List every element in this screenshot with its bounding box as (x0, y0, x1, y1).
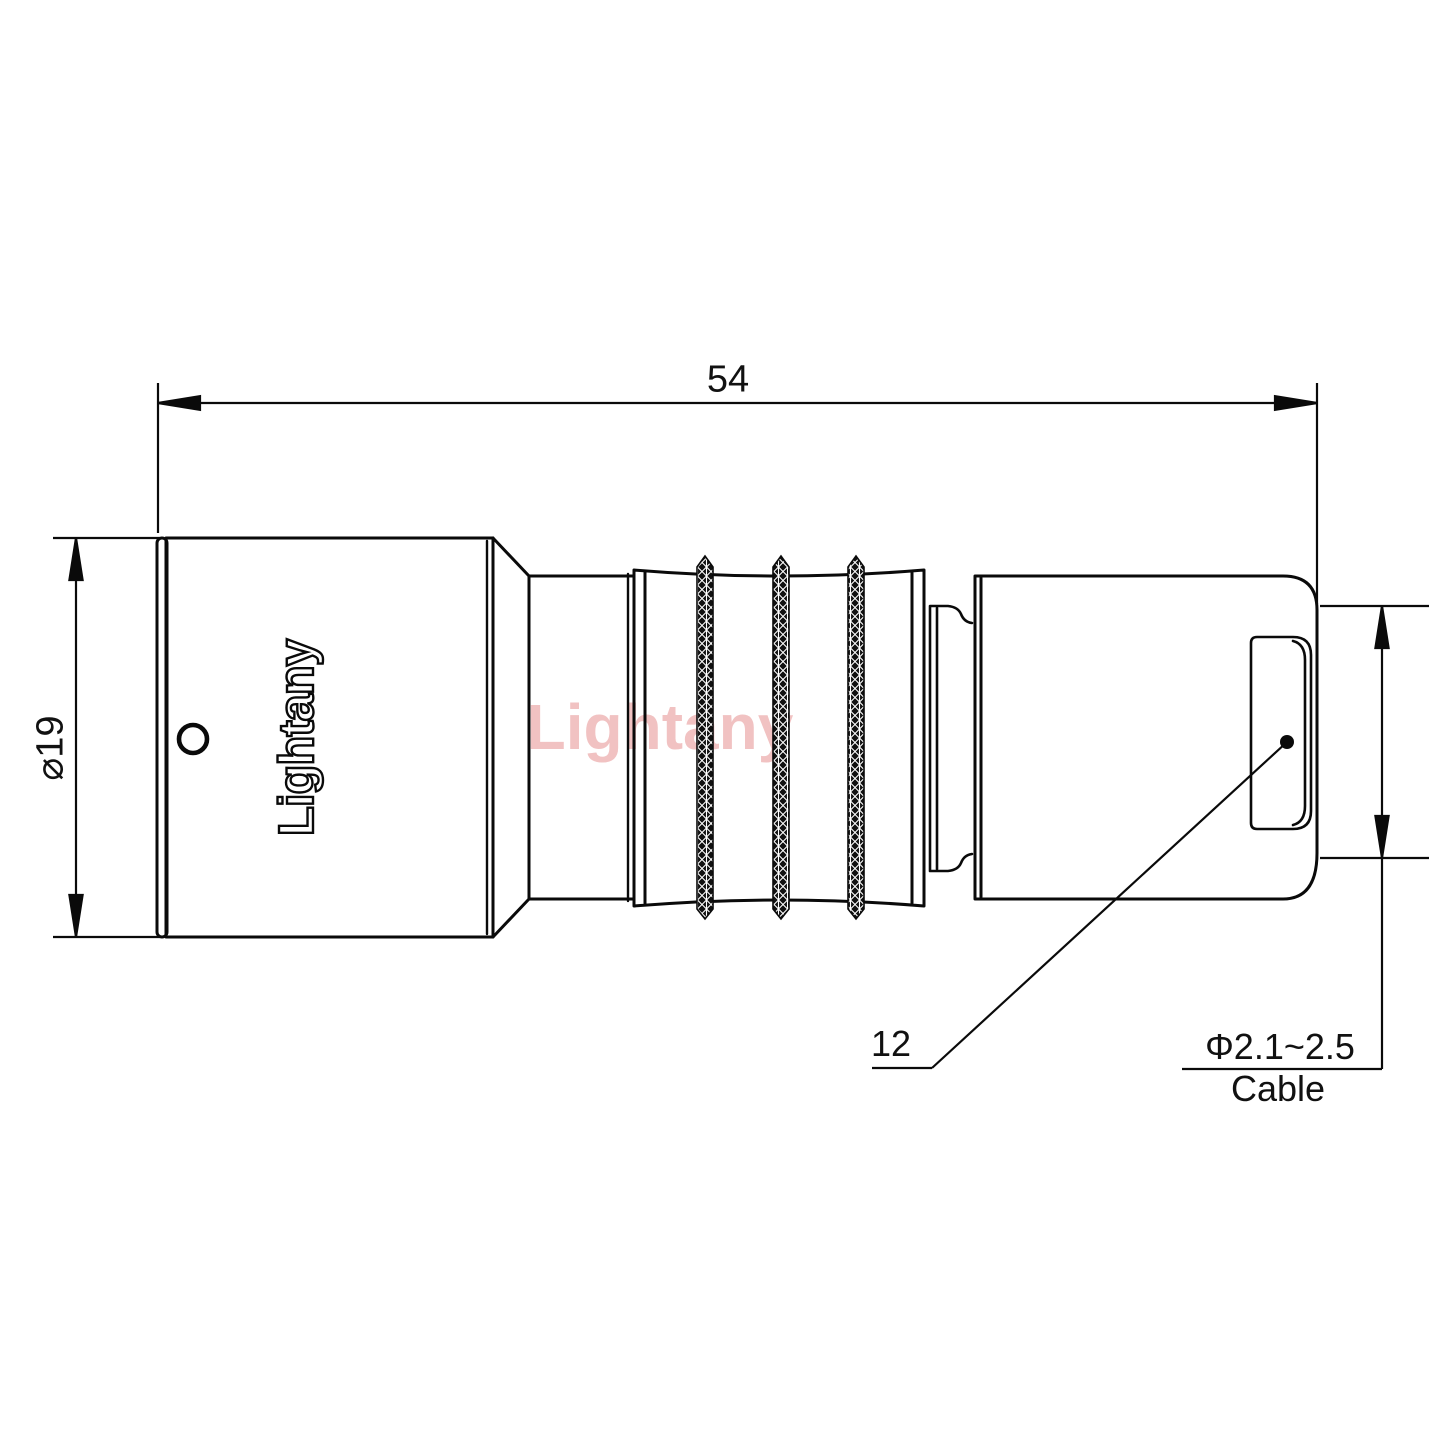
knurl-band (697, 556, 713, 919)
connector-body (157, 538, 1317, 937)
arrow-up-icon (1375, 606, 1388, 648)
knurl-band (773, 556, 789, 919)
dimension-label-cable: Cable (1231, 1068, 1325, 1110)
dimension-label-bushing: 12 (871, 1023, 911, 1065)
knurl-band (848, 556, 864, 919)
knurl-bands (697, 556, 864, 919)
groove-section (930, 606, 972, 871)
arrow-down-icon (69, 895, 82, 937)
arrow-up-icon (69, 538, 82, 580)
rear-nut (975, 576, 1317, 899)
connector-drawing (0, 0, 1440, 1440)
dimension-overall-length (158, 383, 1317, 604)
dimension-label-cable-range: Φ2.1~2.5 (1205, 1026, 1355, 1068)
arrow-left-icon (158, 396, 200, 410)
arrow-right-icon (1275, 396, 1317, 410)
technical-drawing-page: Lightany (0, 0, 1440, 1440)
dimension-label-outer-diameter: ⌀19 (28, 715, 73, 780)
arrow-down-icon (1375, 816, 1388, 858)
body-brand-logo: Lightany (269, 640, 325, 836)
leader-bushing (872, 735, 1294, 1068)
dimension-label-overall-length: 54 (707, 359, 749, 402)
body-main-barrel (166, 538, 493, 937)
cable-bushing (1251, 637, 1311, 829)
body-hole (179, 725, 207, 753)
